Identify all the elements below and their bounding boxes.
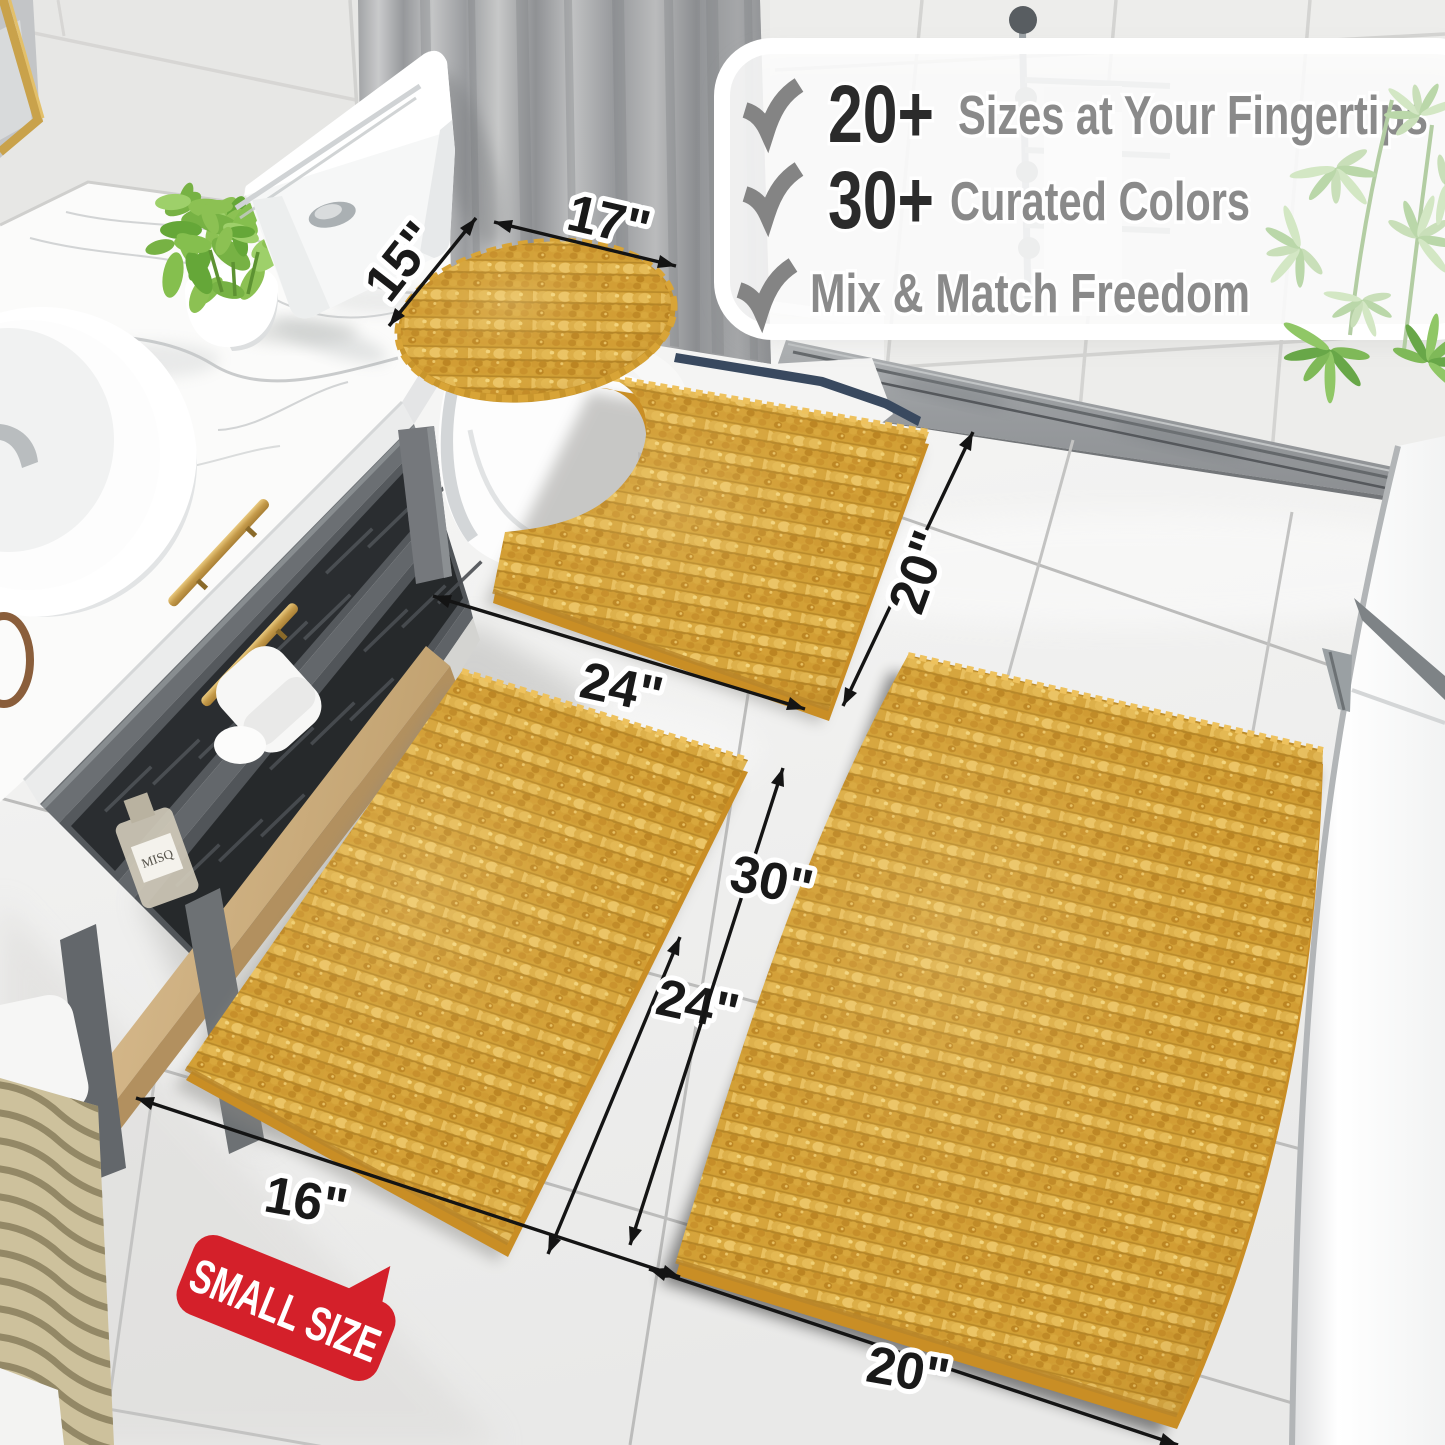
svg-text:30+: 30+	[828, 155, 934, 246]
svg-text:20+: 20+	[828, 69, 934, 160]
svg-text:Sizes at Your Fingertips: Sizes at Your Fingertips	[958, 84, 1428, 146]
svg-text:Mix & Match Freedom: Mix & Match Freedom	[810, 262, 1250, 324]
svg-text:Curated Colors: Curated Colors	[950, 170, 1250, 232]
